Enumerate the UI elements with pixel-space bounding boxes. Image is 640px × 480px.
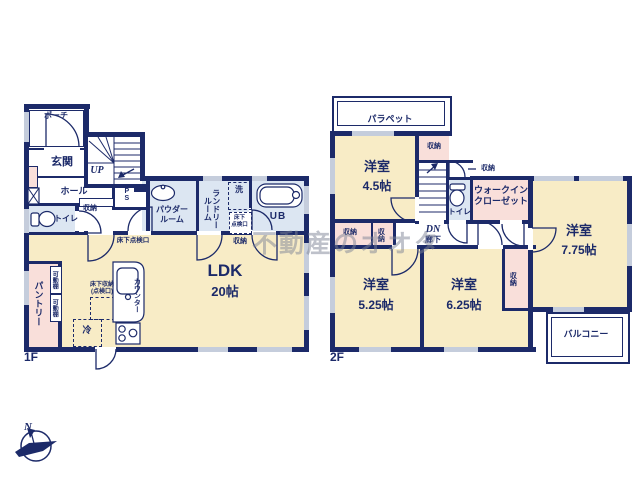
wall (84, 132, 145, 137)
stair-arrowhead-1f (118, 171, 125, 178)
wall (502, 249, 505, 311)
balcony-slider (553, 307, 584, 312)
door-arc-exterior (96, 349, 116, 369)
label-pantry: パントリー (33, 272, 42, 334)
door-arc-wic (502, 224, 524, 246)
label-hall-storage: 収納 (76, 205, 104, 213)
wall (502, 308, 531, 311)
label-entrance: 玄関 (40, 156, 84, 169)
label-shelf-b: 可動棚 (51, 296, 57, 319)
floor-plan: N ポーチ 玄関 UP ホール 収納 トイレ PS パウダー ルーム ランドリー… (0, 0, 640, 480)
label-ldk-size: 20帖 (203, 284, 247, 300)
room-ps-fill (115, 187, 146, 207)
stair-arrowhead-2f (431, 163, 438, 170)
wall (140, 132, 145, 181)
wall (28, 261, 62, 264)
window (24, 271, 29, 305)
label-floor-1f: 1F (24, 350, 50, 364)
closet-strip-2f (504, 249, 530, 309)
label-washer: 洗 (228, 185, 250, 195)
x-box-diagonal (28, 188, 39, 204)
label-room525-size: 5.25帖 (344, 298, 408, 312)
label-room625-size: 6.25帖 (432, 298, 496, 312)
window (330, 158, 335, 194)
window (198, 347, 228, 352)
label-balcony: バルコニー (550, 329, 622, 340)
label-room45: 洋室 (351, 159, 403, 175)
window (444, 347, 478, 352)
underfloor-storage-box (90, 297, 115, 320)
door-arc-toilet-2f (448, 224, 467, 243)
window (579, 176, 623, 181)
wall (446, 177, 473, 180)
label-up: UP (86, 165, 108, 177)
wall (472, 176, 532, 180)
door-opening (478, 245, 503, 249)
wall (420, 249, 424, 347)
wall (446, 160, 473, 163)
door-opening (415, 197, 419, 221)
door-arc-toilet-closet (449, 161, 465, 177)
label-floor-2f: 2F (330, 350, 356, 364)
door-opening (95, 347, 116, 352)
door-opening (128, 231, 151, 235)
wall (330, 219, 419, 223)
window (203, 176, 222, 181)
entrance-x-box (28, 188, 39, 204)
label-toilet-storage: 収納 (476, 165, 500, 173)
window (534, 176, 574, 181)
label-room45-size: 4.5帖 (348, 179, 406, 193)
wall (28, 232, 86, 235)
wall (528, 307, 533, 352)
label-storage-top: 収納 (420, 143, 448, 151)
label-parapet: パラペット (354, 114, 426, 125)
window (304, 186, 309, 214)
window (330, 277, 335, 313)
window (352, 131, 394, 136)
wall (24, 104, 90, 109)
label-laundry-room: ランドリー ルーム (203, 183, 220, 235)
window (359, 347, 391, 352)
label-toilet-2f: トイレ (446, 207, 473, 216)
label-room775: 洋室 (553, 223, 605, 239)
label-wic: ウォークイン クローゼット (472, 185, 530, 207)
stairs-2f (419, 170, 448, 212)
stair-arrow-2f (427, 165, 436, 173)
stair-arrow-1f (121, 169, 134, 176)
watermark: 不動産のオオタ (252, 224, 441, 260)
door-arc-toilet-1f (79, 211, 101, 233)
wall (112, 207, 149, 210)
label-powder-room: パウダー ルーム (146, 205, 198, 224)
label-porch: ポーチ (36, 111, 76, 121)
label-ldk: LDK (203, 261, 247, 281)
compass: N (15, 421, 57, 461)
window (24, 209, 29, 233)
window (304, 296, 309, 330)
label-hall-underfloor: 床下点検口 (110, 237, 156, 245)
label-pipe-space: PS (123, 185, 130, 205)
label-room775-size: 7.75帖 (546, 243, 612, 257)
label-kitchen-underfloor: 床下収納 (点検口) (82, 282, 122, 296)
label-shelf-a: 可動棚 (51, 268, 57, 291)
wall (84, 137, 88, 188)
door-opening (449, 220, 466, 224)
door-opening (528, 228, 533, 250)
label-bath-storage: 収納 (228, 238, 252, 246)
label-storage-right: 収納 (509, 261, 516, 297)
door-opening (44, 148, 80, 150)
door-opening (500, 220, 522, 224)
label-hall: ホール (52, 186, 96, 197)
entrance-closet (28, 166, 38, 188)
label-room625: 洋室 (438, 277, 490, 293)
window (24, 112, 29, 142)
wall (28, 203, 79, 206)
window (257, 347, 292, 352)
label-bath: UB (264, 211, 292, 223)
window (252, 176, 267, 181)
window (627, 224, 632, 266)
label-room525: 洋室 (350, 277, 402, 293)
x-box-diagonal (28, 188, 39, 204)
label-counter: カウンター (133, 272, 140, 318)
wall (143, 176, 309, 181)
label-toilet-1f: トイレ (53, 214, 79, 224)
label-fridge: 冷 (78, 325, 96, 336)
compass-north-label: N (23, 421, 33, 433)
door-opening (88, 231, 113, 235)
door-arc-room625 (478, 221, 502, 245)
wall (417, 160, 449, 163)
label-laundry-underfloor: 床下 点検口 (229, 215, 250, 228)
